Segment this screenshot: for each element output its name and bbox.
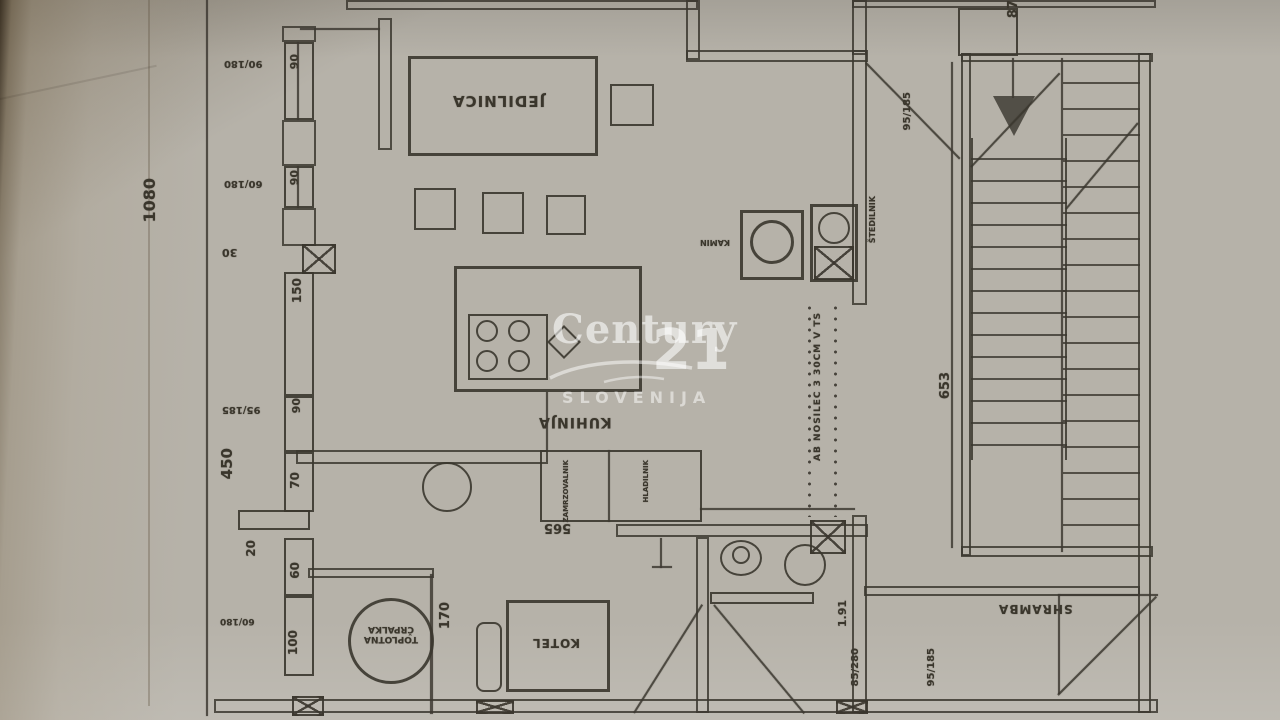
tank [476,622,502,692]
burner [508,350,530,372]
wall-stub [660,538,662,568]
burner [476,350,498,372]
wall [686,50,868,62]
wall [282,26,316,42]
burner [508,320,530,342]
dim-100: 100 [286,630,300,655]
dim-90: 90 [288,170,301,185]
shelf [710,592,814,604]
stove-hatch [814,246,854,280]
burner [476,320,498,342]
chair [414,188,456,230]
dimension-line-left [206,0,208,716]
heat-pump-label-line1: TOPLOTNA [356,634,426,644]
wall [296,450,548,464]
stair-direction-arrow [993,96,1035,136]
stove-label: ŠTEDILNIK [868,196,877,243]
fireplace-label: KAMIN [700,238,730,247]
room-pantry: SHRAMBA [998,602,1073,616]
dim-87: 87 [1006,0,1021,18]
wall-junction [302,244,336,274]
arrow-shaft [1012,58,1014,98]
wall [961,53,971,556]
beam-dashed-line [808,305,811,517]
chair [482,192,524,234]
heat-pump-label: TOPLOTNA ČRPALKA [356,624,426,644]
counter-line [546,392,548,450]
watermark-swoosh-icon [546,352,696,392]
paper-crease [0,65,157,100]
wall [214,699,1158,713]
wall [284,272,314,396]
wall-junction [810,520,846,554]
boiler-label: KOTEL [532,636,580,650]
watermark-region: SLOVENIJA [562,388,711,407]
door-swing [633,604,703,713]
window-size: 60/180 [220,616,255,626]
wall-junction [476,700,514,714]
dim-191: 1.91 [836,600,849,627]
paper-edge [148,0,150,706]
door-swing [713,604,805,714]
stove-ring [818,212,850,244]
wall [852,0,867,55]
chimney [378,18,392,150]
dim-170: 170 [438,602,453,629]
dim-90: 90 [288,54,301,69]
wall-stub [652,566,672,568]
beam-note: AB NOSILEC 3 30CM V TS [813,312,823,461]
dimension-line [951,62,953,548]
dim-20: 20 [244,540,258,557]
door-size: 95/185 [222,404,260,415]
counter-divider [608,450,610,522]
wall [284,396,314,452]
heat-pump-label-line2: ČRPALKA [356,624,426,634]
window-size: 60/180 [224,178,262,189]
wall [308,568,434,578]
stair-flight [971,138,1067,460]
floor-plan-photo: 1080 90 90/180 90 60/180 30 150 95/185 9… [0,0,1280,720]
room-kitchen: KUHINJA [538,414,612,430]
ramp-edge [1058,594,1158,596]
ramp-edge [1058,594,1060,694]
dim-overall: 1080 [140,178,159,223]
room-dining: JEDILNICA [452,92,545,110]
beam-dashed-line [834,305,837,517]
wall [852,0,1156,8]
toilet-tank [732,546,750,564]
door-size: 95/185 [926,648,937,686]
wall-step [238,510,310,530]
wall [282,120,316,166]
freezer-label: ZAMRZOVALNIK [562,460,570,522]
wall [282,208,316,246]
dim-450: 450 [218,448,236,479]
fireplace-flue [750,220,794,264]
dim-653: 653 [938,372,953,399]
window-size: 90/180 [224,58,262,69]
counter-line [700,508,855,510]
dim-60: 60 [288,562,302,579]
chair [546,195,586,235]
fridge-label: HLADILNIK [642,460,650,503]
wall [852,515,867,713]
cabinet [610,84,654,126]
door-size: 95/185 [902,92,913,130]
wall-junction [836,700,868,714]
small-table [422,462,472,512]
dim-565: 565 [544,520,571,535]
dim-30: 30 [222,246,237,259]
wall [346,0,698,10]
wall [696,537,709,713]
